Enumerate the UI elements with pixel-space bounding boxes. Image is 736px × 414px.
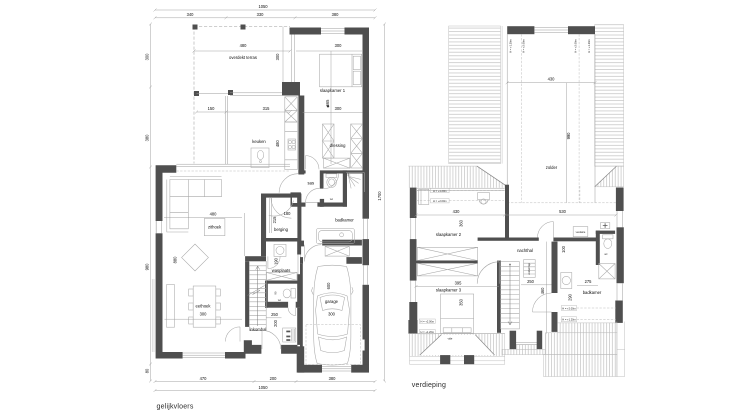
svg-text:80: 80 — [145, 368, 150, 373]
svg-text:dressing: dressing — [330, 143, 346, 148]
svg-text:300: 300 — [335, 106, 343, 111]
svg-text:1050: 1050 — [258, 385, 268, 390]
svg-text:200: 200 — [273, 319, 278, 327]
svg-text:380: 380 — [329, 376, 337, 381]
svg-text:250: 250 — [271, 312, 279, 317]
svg-text:880: 880 — [173, 256, 178, 264]
svg-text:330: 330 — [257, 12, 265, 17]
svg-text:100: 100 — [561, 245, 566, 253]
svg-text:sas: sas — [308, 181, 315, 186]
svg-text:480: 480 — [210, 212, 218, 217]
svg-text:430: 430 — [453, 209, 461, 214]
svg-text:zithoek: zithoek — [208, 225, 222, 230]
svg-text:H = +1.20m: H = +1.20m — [562, 318, 576, 322]
svg-text:300: 300 — [145, 53, 150, 61]
svg-text:530: 530 — [559, 209, 567, 214]
svg-text:360: 360 — [459, 219, 464, 227]
svg-text:vide: vide — [448, 337, 453, 341]
svg-text:600: 600 — [326, 282, 331, 290]
svg-text:290: 290 — [568, 293, 573, 301]
svg-text:480: 480 — [275, 140, 280, 148]
svg-text:keuken: keuken — [252, 139, 266, 144]
svg-text:460: 460 — [540, 287, 545, 295]
svg-text:350: 350 — [459, 298, 464, 306]
svg-text:200: 200 — [270, 376, 278, 381]
svg-text:1700: 1700 — [377, 191, 382, 201]
svg-text:H = +2.00m: H = +2.00m — [421, 319, 435, 323]
svg-text:250: 250 — [527, 279, 535, 284]
svg-text:slaapkamer 2: slaapkamer 2 — [436, 232, 462, 237]
svg-text:gelijkvloers: gelijkvloers — [157, 404, 194, 411]
svg-text:300: 300 — [200, 312, 208, 317]
svg-text:H = +2.00m: H = +2.00m — [522, 39, 526, 53]
svg-text:garage: garage — [325, 299, 339, 304]
svg-text:180: 180 — [284, 211, 292, 216]
svg-text:H = +2.00m: H = +2.00m — [573, 39, 577, 53]
svg-text:395: 395 — [455, 280, 463, 285]
svg-text:990: 990 — [566, 132, 571, 140]
svg-text:H = +1.20m: H = +1.20m — [509, 39, 513, 53]
svg-text:berging: berging — [274, 227, 289, 232]
svg-text:slaapkamer 3: slaapkamer 3 — [436, 288, 462, 293]
svg-text:300: 300 — [335, 43, 343, 48]
svg-text:480: 480 — [240, 43, 248, 48]
svg-text:H = +1.20m: H = +1.20m — [587, 39, 591, 53]
svg-text:300: 300 — [328, 312, 336, 317]
svg-text:H = +1.20m: H = +1.20m — [433, 189, 447, 193]
svg-text:eethoek: eethoek — [196, 303, 212, 308]
svg-text:zolder: zolder — [546, 165, 558, 170]
svg-text:315: 315 — [263, 106, 271, 111]
svg-text:215: 215 — [272, 216, 277, 224]
svg-text:980: 980 — [145, 263, 150, 271]
svg-text:wasplaats: wasplaats — [272, 268, 291, 273]
svg-text:badkamer: badkamer — [335, 218, 354, 223]
svg-text:zoldertrap: zoldertrap — [527, 263, 531, 275]
svg-text:H = +2.00m: H = +2.00m — [562, 306, 576, 310]
svg-text:verdieping: verdieping — [412, 382, 446, 389]
svg-text:275: 275 — [585, 279, 593, 284]
svg-text:inkomhal: inkomhal — [250, 327, 267, 332]
svg-text:nachthal: nachthal — [517, 248, 533, 253]
svg-text:470: 470 — [200, 376, 208, 381]
svg-text:H = +2.00m: H = +2.00m — [433, 199, 447, 203]
svg-text:slaapkamer 1: slaapkamer 1 — [320, 88, 346, 93]
svg-text:430: 430 — [548, 77, 556, 82]
svg-text:300: 300 — [275, 53, 280, 61]
svg-text:overdekt terras: overdekt terras — [229, 55, 257, 60]
svg-text:vestiaire: vestiaire — [576, 230, 586, 234]
svg-text:340: 340 — [187, 12, 195, 17]
svg-text:380: 380 — [332, 12, 340, 17]
svg-text:380: 380 — [145, 134, 150, 142]
svg-text:badkamer: badkamer — [583, 290, 602, 295]
svg-text:150: 150 — [208, 106, 216, 111]
svg-text:1050: 1050 — [258, 4, 268, 9]
